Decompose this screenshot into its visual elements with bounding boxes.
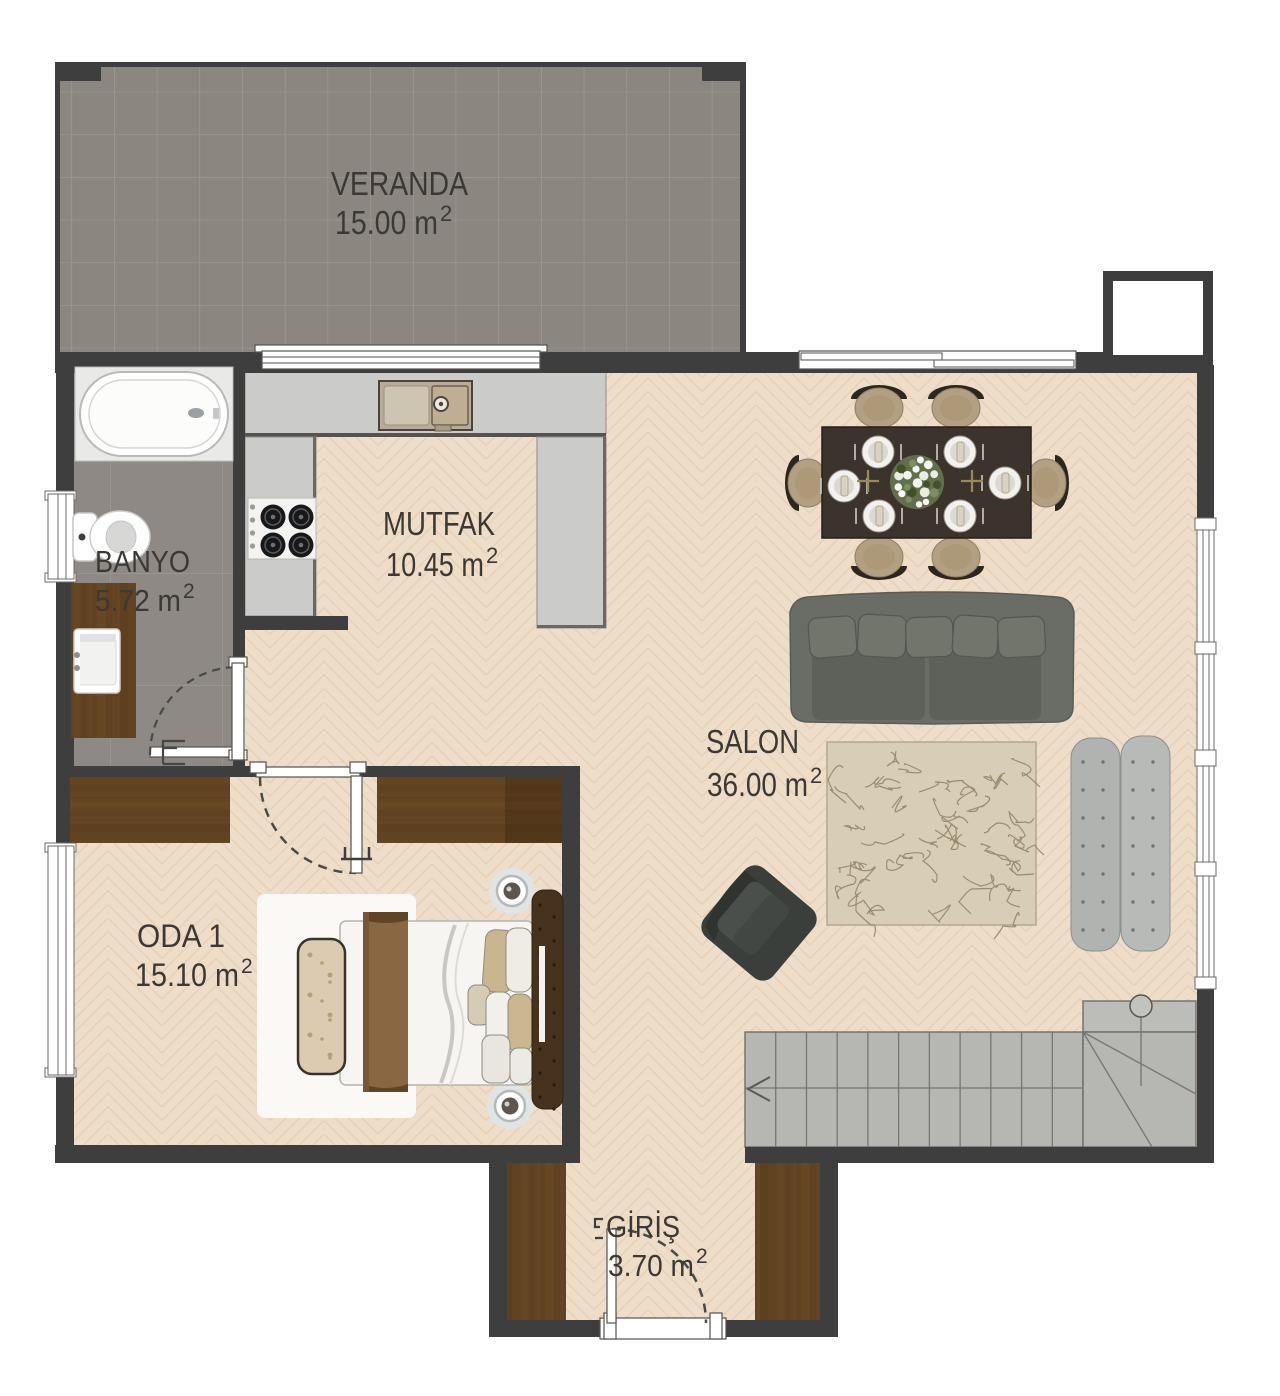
svg-text:ODA 1: ODA 1 bbox=[137, 918, 225, 954]
svg-text:BANYO: BANYO bbox=[95, 544, 190, 579]
svg-text:2: 2 bbox=[440, 201, 452, 226]
svg-text:2: 2 bbox=[486, 543, 498, 568]
svg-text:SALON: SALON bbox=[706, 723, 799, 760]
svg-text:MUTFAK: MUTFAK bbox=[383, 505, 495, 542]
svg-text:10.45 m: 10.45 m bbox=[386, 546, 484, 583]
svg-text:15.10 m: 15.10 m bbox=[135, 957, 239, 993]
svg-text:15.00 m: 15.00 m bbox=[335, 204, 438, 241]
svg-text:5.72 m: 5.72 m bbox=[95, 583, 181, 618]
svg-text:2: 2 bbox=[810, 763, 822, 788]
svg-text:3.70 m: 3.70 m bbox=[608, 1248, 694, 1283]
svg-text:2: 2 bbox=[183, 580, 195, 603]
svg-text:36.00 m: 36.00 m bbox=[707, 766, 808, 803]
svg-text:GİRİŞ: GİRİŞ bbox=[606, 1209, 680, 1244]
svg-text:VERANDA: VERANDA bbox=[331, 165, 468, 202]
svg-text:2: 2 bbox=[696, 1245, 708, 1268]
svg-text:2: 2 bbox=[241, 955, 253, 978]
